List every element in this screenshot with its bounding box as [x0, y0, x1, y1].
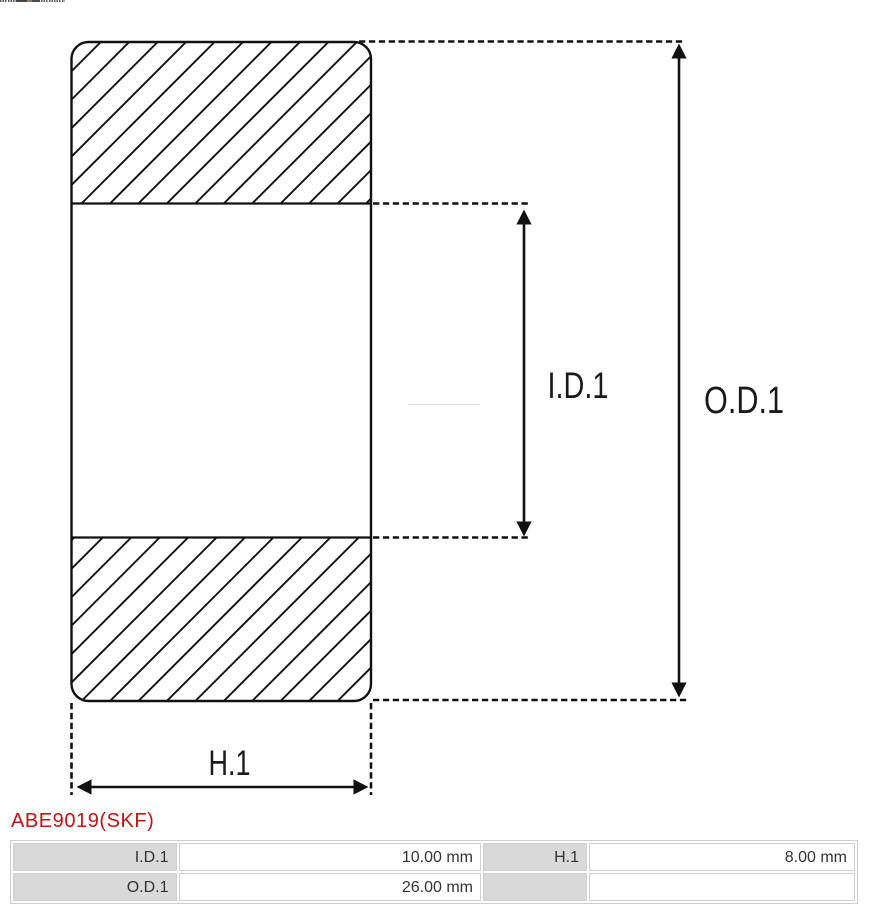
svg-text:H.1: H.1: [209, 744, 251, 783]
svg-text:I.D.1: I.D.1: [548, 365, 609, 406]
svg-text:O.D.1: O.D.1: [704, 380, 784, 422]
